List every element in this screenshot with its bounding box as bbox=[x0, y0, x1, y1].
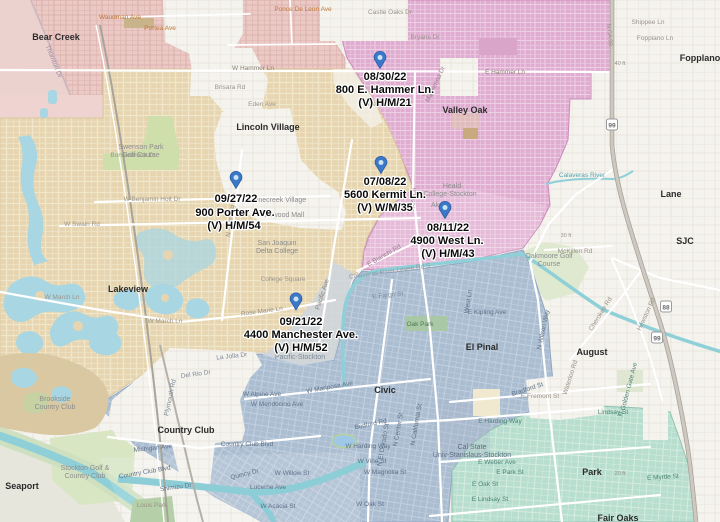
svg-text:W Acacia St: W Acacia St bbox=[260, 503, 295, 510]
svg-text:W Magnolia St: W Magnolia St bbox=[364, 469, 406, 476]
svg-text:09/27/22: 09/27/22 bbox=[215, 193, 258, 205]
svg-text:Seaport: Seaport bbox=[5, 481, 39, 491]
svg-text:4400 Manchester Ave.: 4400 Manchester Ave. bbox=[244, 329, 358, 341]
svg-text:Pacific-Stockton: Pacific-Stockton bbox=[275, 354, 325, 361]
svg-text:El Pinal: El Pinal bbox=[466, 342, 499, 352]
svg-text:W Oak St: W Oak St bbox=[356, 501, 384, 508]
svg-text:W Willow St: W Willow St bbox=[275, 470, 310, 477]
svg-text:Lincoln Village: Lincoln Village bbox=[236, 122, 299, 132]
svg-text:Lane: Lane bbox=[660, 189, 681, 199]
svg-text:Univ-Stanislaus-Stockton: Univ-Stanislaus-Stockton bbox=[433, 452, 511, 459]
svg-text:W Benjamin Holt Dr: W Benjamin Holt Dr bbox=[123, 196, 181, 203]
svg-text:E Lindsay St: E Lindsay St bbox=[472, 496, 509, 503]
svg-text:99: 99 bbox=[653, 336, 661, 343]
svg-text:W March Ln: W March Ln bbox=[44, 294, 79, 301]
svg-text:Fopplano: Fopplano bbox=[680, 53, 720, 63]
svg-text:Waudman Ave: Waudman Ave bbox=[99, 14, 141, 21]
svg-text:Fair Oaks: Fair Oaks bbox=[597, 513, 638, 522]
svg-text:99: 99 bbox=[608, 123, 616, 130]
svg-text:Bear Creek: Bear Creek bbox=[32, 32, 81, 42]
svg-text:Oakmoore Golf: Oakmoore Golf bbox=[525, 253, 573, 260]
svg-text:Lucerne Ave: Lucerne Ave bbox=[250, 484, 286, 491]
svg-text:Stockton Golf &: Stockton Golf & bbox=[61, 465, 110, 472]
svg-text:Louis Park: Louis Park bbox=[137, 502, 168, 509]
svg-text:Portea Ave: Portea Ave bbox=[144, 25, 176, 32]
svg-text:29 ft: 29 ft bbox=[615, 471, 626, 477]
svg-text:E Weber Ave: E Weber Ave bbox=[478, 459, 516, 466]
svg-text:Golf Course: Golf Course bbox=[122, 152, 159, 159]
svg-text:30 ft: 30 ft bbox=[561, 233, 572, 239]
svg-text:900 Porter Ave.: 900 Porter Ave. bbox=[195, 207, 274, 219]
svg-text:4900 West Ln.: 4900 West Ln. bbox=[410, 235, 483, 247]
svg-text:40 ft: 40 ft bbox=[615, 61, 626, 67]
svg-text:E Oak St: E Oak St bbox=[472, 481, 498, 488]
svg-text:Brookside: Brookside bbox=[39, 396, 70, 403]
svg-text:E Fremont St: E Fremont St bbox=[521, 393, 559, 400]
svg-text:(V) H/M/43: (V) H/M/43 bbox=[421, 248, 474, 260]
svg-text:08/11/22: 08/11/22 bbox=[427, 222, 469, 234]
svg-text:(V) H/M/54: (V) H/M/54 bbox=[207, 220, 261, 232]
svg-text:(V) H/M/52: (V) H/M/52 bbox=[274, 342, 327, 354]
svg-text:Calaveras River: Calaveras River bbox=[559, 172, 606, 179]
svg-text:(V) H/M/21: (V) H/M/21 bbox=[358, 97, 411, 109]
svg-text:E Hammer Ln: E Hammer Ln bbox=[485, 69, 525, 76]
svg-text:College Square: College Square bbox=[261, 276, 306, 283]
svg-text:Ponce De Leon Ave: Ponce De Leon Ave bbox=[274, 6, 332, 13]
svg-text:5600 Kermit Ln.: 5600 Kermit Ln. bbox=[344, 189, 426, 201]
svg-text:08/30/22: 08/30/22 bbox=[364, 71, 407, 83]
svg-text:W Hammer Ln: W Hammer Ln bbox=[232, 65, 274, 72]
svg-text:W March Ln: W March Ln bbox=[147, 318, 182, 325]
svg-text:SJC: SJC bbox=[676, 236, 694, 246]
svg-text:Oak Park: Oak Park bbox=[406, 321, 434, 328]
svg-text:Country Club Blvd: Country Club Blvd bbox=[221, 441, 274, 448]
svg-text:Country Club: Country Club bbox=[158, 425, 215, 435]
svg-text:07/08/22: 07/08/22 bbox=[364, 176, 407, 188]
svg-text:Country Club: Country Club bbox=[35, 404, 76, 411]
svg-text:Castle Oaks Dr: Castle Oaks Dr bbox=[368, 9, 413, 16]
svg-text:E Kipling Ave: E Kipling Ave bbox=[468, 309, 507, 316]
svg-text:Valley Oak: Valley Oak bbox=[442, 105, 488, 115]
svg-text:(V) W/M/35: (V) W/M/35 bbox=[357, 202, 413, 214]
svg-text:Brisara Rd: Brisara Rd bbox=[215, 84, 246, 91]
svg-text:09/21/22: 09/21/22 bbox=[280, 316, 323, 328]
svg-text:Civic: Civic bbox=[374, 385, 396, 395]
svg-text:Bryans Dr: Bryans Dr bbox=[411, 34, 441, 41]
svg-text:E Harding Way: E Harding Way bbox=[478, 418, 522, 425]
svg-text:Course: Course bbox=[538, 261, 561, 268]
svg-text:W Swain Rd: W Swain Rd bbox=[64, 221, 100, 228]
svg-text:College-Stockton: College-Stockton bbox=[423, 191, 476, 198]
svg-text:E Park St: E Park St bbox=[496, 469, 524, 476]
svg-text:W Mendocino Ave: W Mendocino Ave bbox=[251, 401, 304, 408]
svg-text:Park: Park bbox=[582, 467, 603, 477]
svg-text:W Alpine Ave: W Alpine Ave bbox=[243, 391, 282, 398]
svg-text:Eden Ave: Eden Ave bbox=[248, 101, 276, 108]
svg-text:Shippee Ln: Shippee Ln bbox=[632, 19, 665, 26]
svg-text:August: August bbox=[577, 347, 608, 357]
svg-text:Heald: Heald bbox=[443, 183, 461, 190]
svg-text:San Joaquin: San Joaquin bbox=[258, 240, 297, 247]
svg-text:Delta College: Delta College bbox=[256, 248, 298, 255]
svg-text:Cal State: Cal State bbox=[458, 444, 487, 451]
svg-text:88: 88 bbox=[662, 305, 670, 312]
svg-text:800 E. Hammer Ln.: 800 E. Hammer Ln. bbox=[336, 84, 434, 96]
svg-text:Foppiano Ln: Foppiano Ln bbox=[637, 35, 674, 42]
svg-text:Country Club: Country Club bbox=[65, 473, 106, 480]
svg-text:Swenson Park: Swenson Park bbox=[118, 144, 164, 151]
svg-text:Lakeview: Lakeview bbox=[108, 284, 149, 294]
